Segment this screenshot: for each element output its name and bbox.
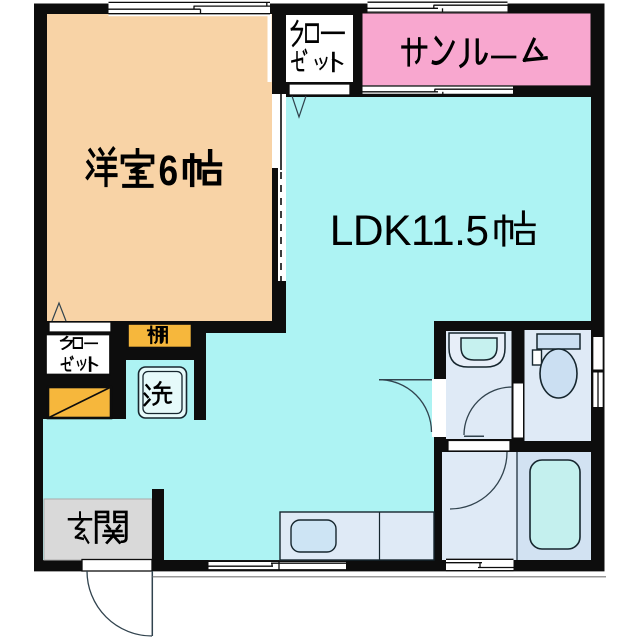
svg-text:6: 6 — [159, 147, 179, 195]
svg-text:LDK11.5: LDK11.5 — [330, 208, 489, 255]
